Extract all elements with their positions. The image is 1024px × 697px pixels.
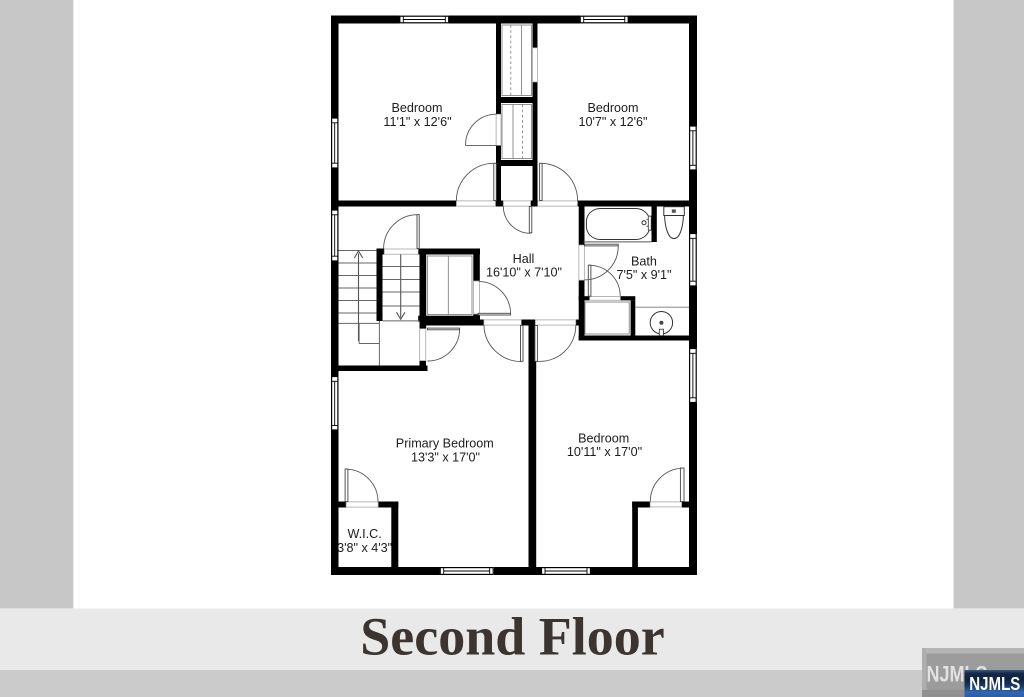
svg-text:16'10" x 7'10": 16'10" x 7'10" <box>486 265 562 279</box>
svg-text:Bedroom: Bedroom <box>391 101 442 115</box>
svg-text:Bedroom: Bedroom <box>587 101 638 115</box>
svg-text:Primary Bedroom: Primary Bedroom <box>396 436 494 450</box>
svg-text:10'11" x 17'0": 10'11" x 17'0" <box>567 445 642 459</box>
svg-text:3'8" x 4'3": 3'8" x 4'3" <box>337 541 392 555</box>
svg-text:11'1" x 12'6": 11'1" x 12'6" <box>383 115 451 129</box>
svg-text:W.I.C.: W.I.C. <box>347 527 381 541</box>
svg-text:13'3" x 17'0": 13'3" x 17'0" <box>411 451 480 465</box>
svg-text:Bedroom: Bedroom <box>578 431 629 445</box>
svg-text:Hall: Hall <box>513 252 535 266</box>
svg-text:7'5" x 9'1": 7'5" x 9'1" <box>616 268 671 282</box>
svg-text:Second Floor: Second Floor <box>360 607 665 667</box>
svg-text:10'7" x 12'6": 10'7" x 12'6" <box>578 115 647 129</box>
svg-text:Bath: Bath <box>631 255 657 269</box>
svg-text:NJMLS: NJMLS <box>969 673 1020 694</box>
